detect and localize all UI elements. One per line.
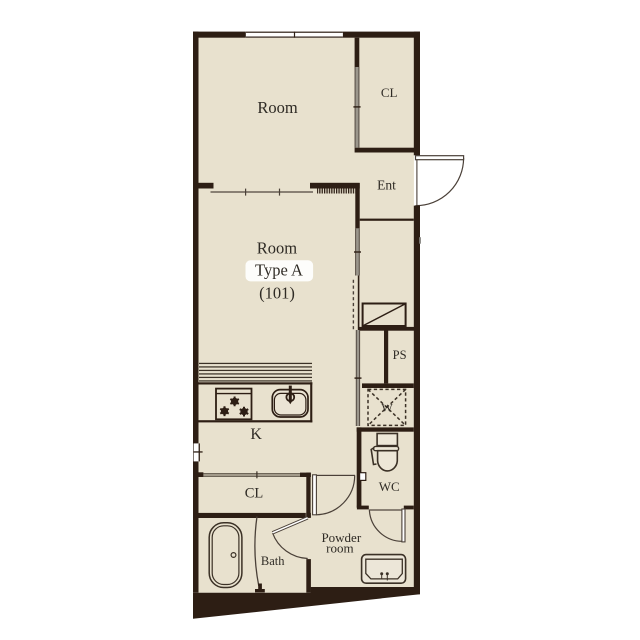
svg-text:K: K [250,426,262,443]
svg-text:W: W [381,401,393,415]
svg-text:Ent: Ent [377,178,396,193]
svg-text:room: room [326,541,353,556]
svg-text:Bath: Bath [261,554,285,568]
svg-text:Room: Room [257,239,298,258]
svg-text:CL: CL [381,85,398,100]
svg-text:PS: PS [393,348,407,362]
svg-text:CL: CL [245,485,264,501]
svg-text:Room: Room [257,98,298,117]
svg-text:Type A: Type A [255,260,303,279]
svg-text:WC: WC [379,479,400,494]
svg-text:(101): (101) [259,284,295,303]
